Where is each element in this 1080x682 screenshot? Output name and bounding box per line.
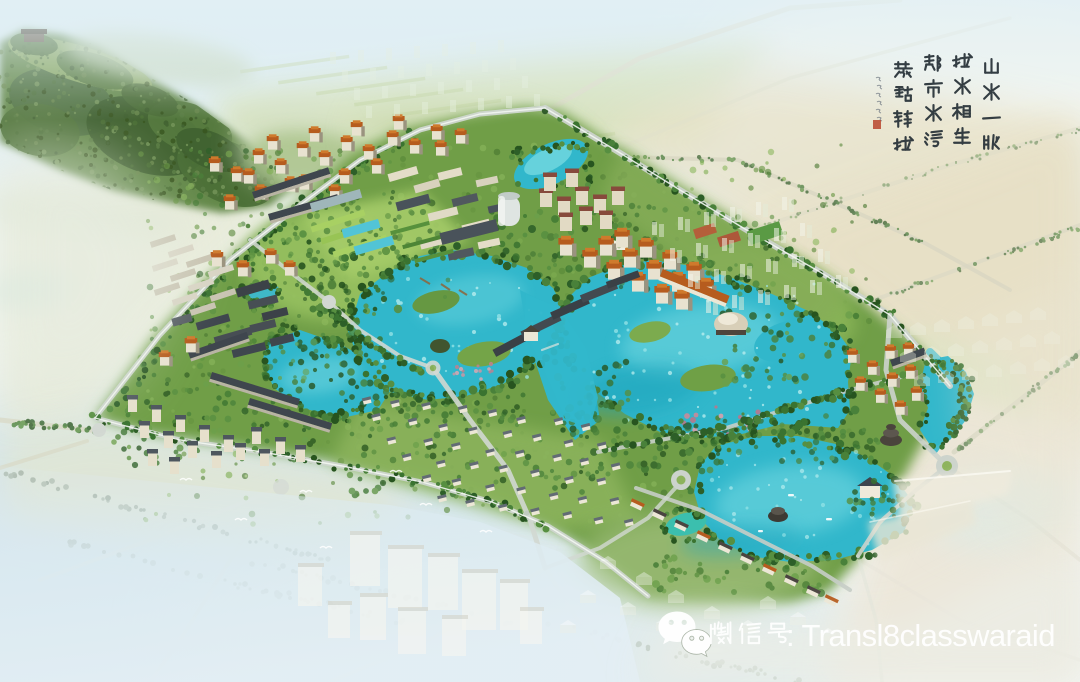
svg-text:: Transl8classwaraid: : Transl8classwaraid (786, 618, 1055, 653)
